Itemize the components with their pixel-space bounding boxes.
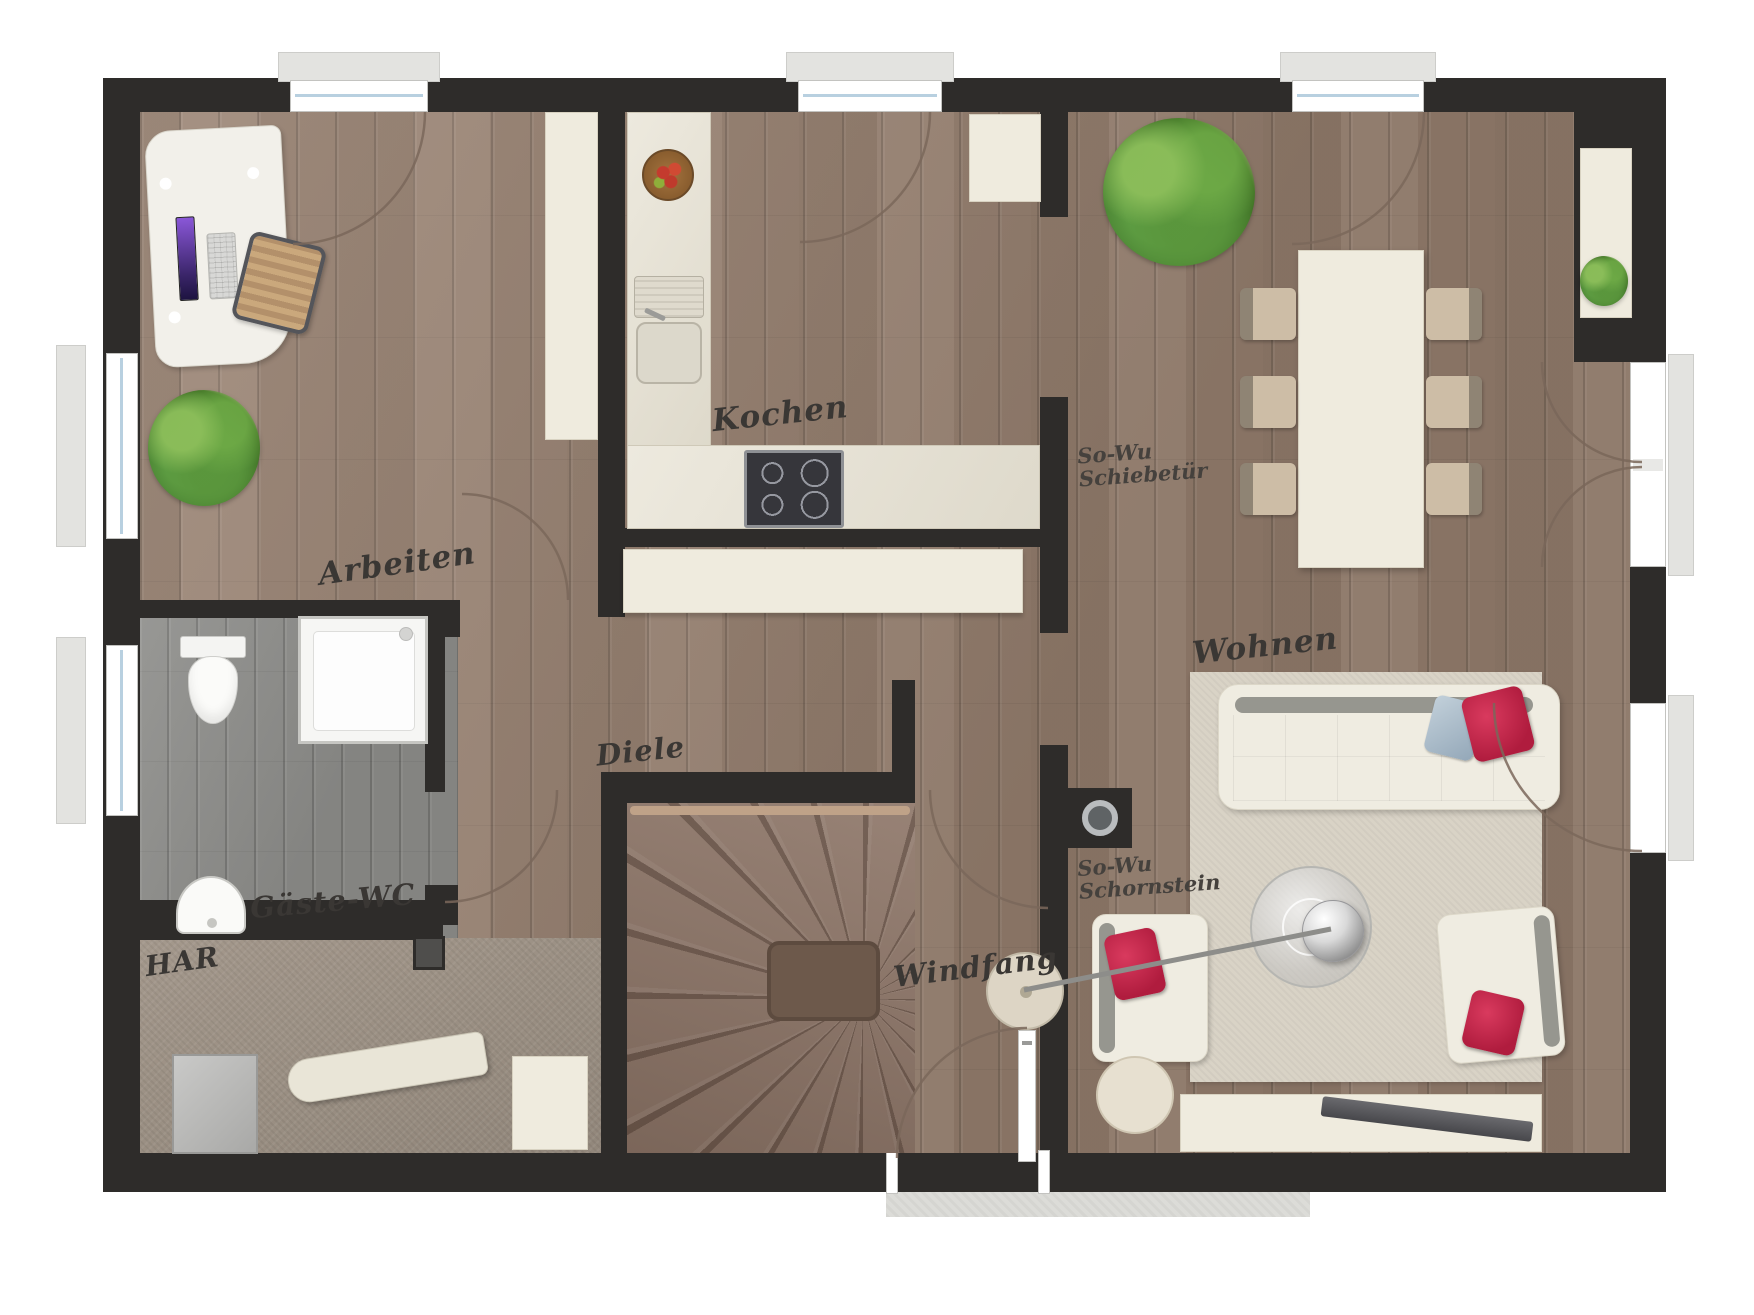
wc-sink-faucet-icon: [207, 918, 217, 928]
entry-door-jamb: [1038, 1150, 1050, 1194]
desk-grommet: [168, 311, 181, 324]
annotation-schornstein: So-Wu Schornstein: [1077, 847, 1222, 903]
window-wc-left: [106, 645, 138, 816]
shower-drain-icon: [399, 627, 413, 641]
soundbar-icon: [1321, 1096, 1534, 1142]
window-sill: [786, 52, 954, 82]
window-sill: [1280, 52, 1436, 82]
door-mullion: [1633, 459, 1663, 471]
stair-landing-newel: [767, 941, 880, 1021]
office-plant: [148, 390, 260, 506]
wall-kitchen-east-a: [1040, 112, 1068, 217]
office-cabinet: [545, 112, 598, 440]
shower: [298, 616, 428, 744]
garden-door-sill: [1668, 695, 1694, 861]
entry-door-jamb: [886, 1150, 898, 1194]
armchair-right: [1436, 905, 1567, 1065]
wall-kitchen-diele: [620, 528, 1068, 547]
window-sill: [278, 52, 440, 82]
garden-single-door: [1630, 703, 1666, 853]
window-sill: [56, 637, 86, 824]
armchair-pillow-red: [1460, 988, 1526, 1057]
dining-plant: [1103, 118, 1255, 266]
entry-door-leaf: [1018, 1030, 1036, 1162]
dining-chair: [1426, 376, 1482, 428]
toilet-tank: [180, 636, 246, 658]
window-office-top: [290, 80, 428, 112]
terrace-french-door: [1630, 362, 1666, 567]
dining-chair: [1240, 288, 1296, 340]
shaft-box: [413, 936, 445, 970]
washing-machine: [172, 1054, 258, 1154]
wall-stair-stub: [892, 680, 915, 772]
dining-chair: [1426, 463, 1482, 515]
wall-left: [103, 78, 140, 1192]
kitchen-sink: [636, 322, 702, 384]
desk-grommet: [159, 177, 172, 190]
staircase: [627, 803, 915, 1153]
window-kitchen-top: [798, 80, 942, 112]
window-office-left: [106, 353, 138, 539]
window-sill: [56, 345, 86, 547]
window-glazing: [120, 358, 123, 534]
tv-lowboard: [1180, 1094, 1542, 1152]
floor-plan: Arbeiten Kochen Diele Gäste-WC HAR Windf…: [0, 0, 1754, 1315]
kitchen-tall-cabinet: [969, 114, 1041, 202]
desk-monitor-icon: [175, 216, 198, 301]
terrace-door-sill: [1668, 354, 1694, 576]
wall-stair-top: [601, 772, 915, 803]
dining-chair: [1240, 463, 1296, 515]
window-glazing: [120, 650, 123, 811]
arc-lamp-shade: [1302, 900, 1364, 962]
chimney-pipe-icon: [1082, 800, 1118, 836]
stair-handrail: [630, 806, 910, 815]
desk-grommet: [247, 167, 260, 180]
dining-chair: [1240, 376, 1296, 428]
fruit-bowl: [642, 149, 694, 201]
armchair-left: [1092, 914, 1208, 1062]
annotation-schiebetuer: So-Wu Schiebetür: [1077, 436, 1209, 491]
wall-sliding-stub-b: [1040, 397, 1068, 633]
wall-wc-east-upper: [425, 602, 445, 792]
door-handle-icon: [1022, 1041, 1032, 1045]
wall-bottom: [103, 1153, 1666, 1192]
sofa: [1218, 684, 1560, 810]
window-dining-top: [1292, 80, 1424, 112]
diele-sideboard: [623, 549, 1023, 613]
arc-lamp-base-dot: [1020, 986, 1032, 998]
wall-stair-left: [601, 803, 627, 1153]
har-cabinet: [512, 1056, 588, 1150]
side-table-round: [1096, 1056, 1174, 1134]
dining-chair: [1426, 288, 1482, 340]
window-glazing: [803, 94, 937, 97]
stove: [744, 450, 844, 528]
desk-keyboard-icon: [206, 232, 238, 299]
shower-tray: [313, 631, 415, 731]
window-glazing: [295, 94, 423, 97]
window-glazing: [1297, 94, 1419, 97]
niche-plant: [1580, 256, 1628, 306]
dining-table: [1298, 250, 1424, 568]
